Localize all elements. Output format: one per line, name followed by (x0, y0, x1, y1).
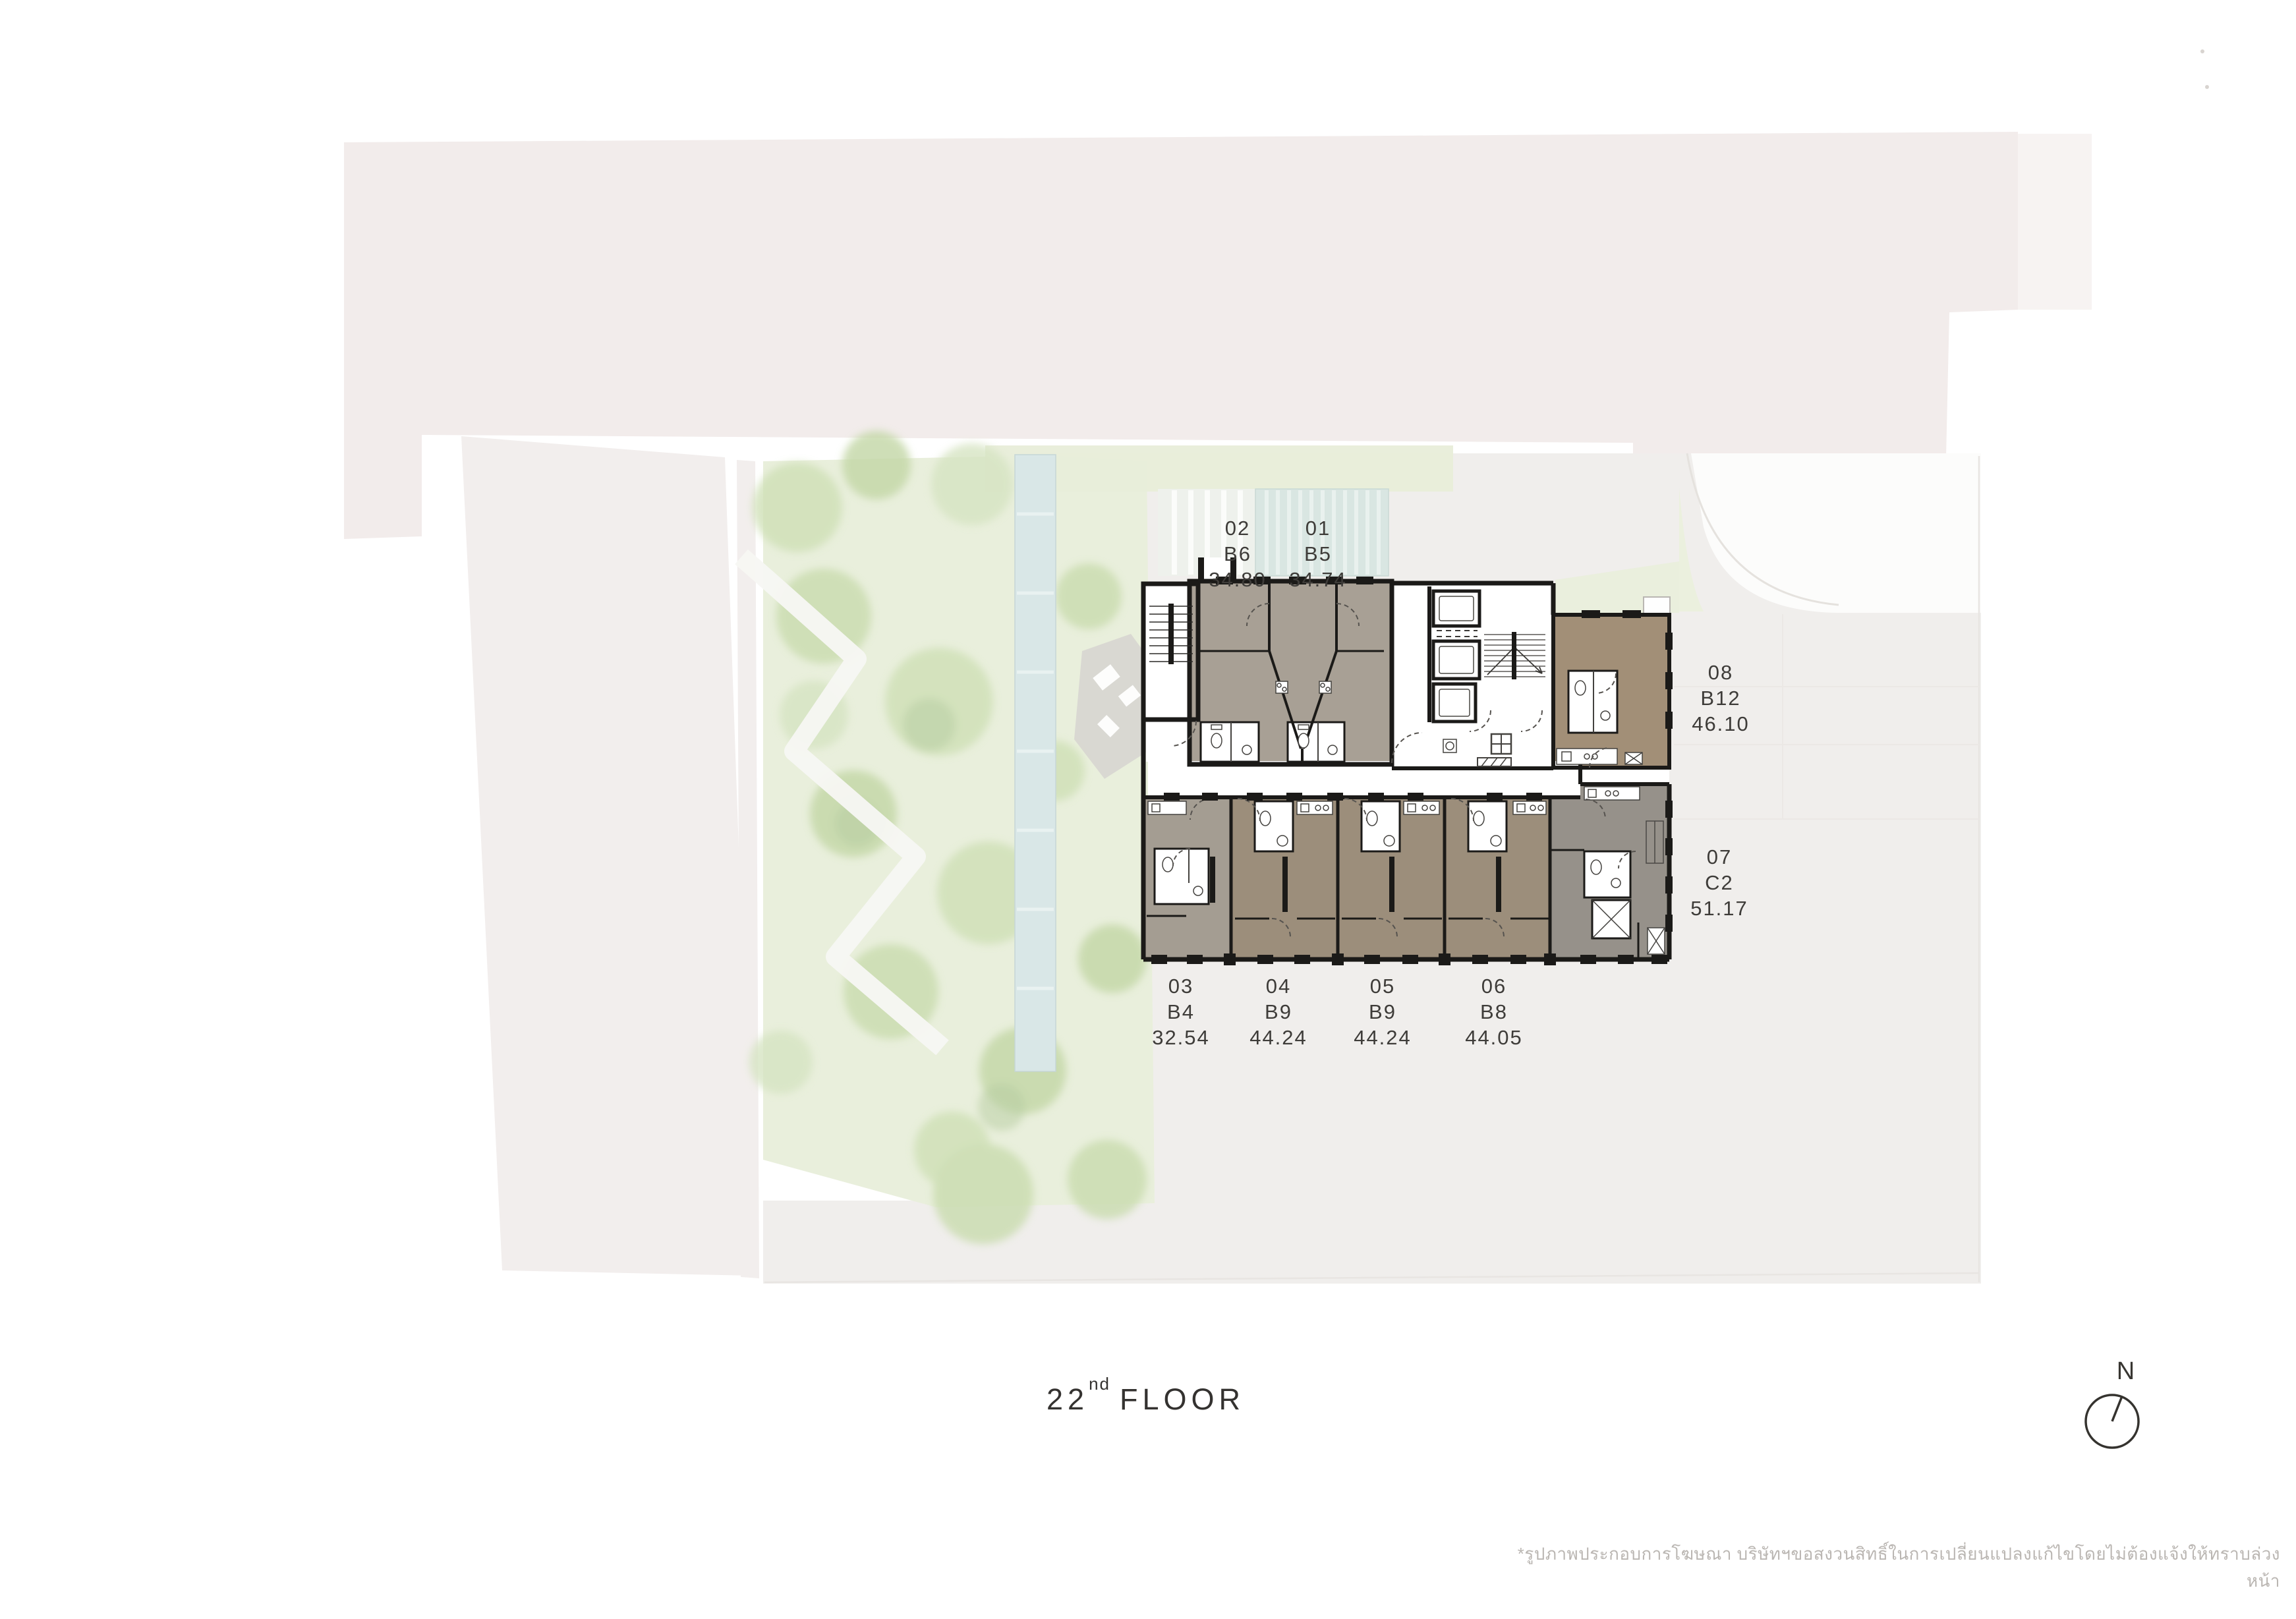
unit-label-07: 07 C2 51.17 (1647, 844, 1792, 921)
unit-number: 01 (1246, 515, 1391, 541)
disclaimer-text: *รูปภาพประกอบการโฆษณา บริษัทฯขอสงวนสิทธิ… (1516, 1541, 2280, 1595)
site-band-left (461, 436, 754, 1276)
unit-area: 34.74 (1246, 567, 1391, 592)
floor-word: FLOOR (1120, 1382, 1245, 1416)
floor-ordinal: nd (1089, 1374, 1110, 1394)
unit-type: B8 (1421, 999, 1566, 1025)
floor-number: 22 (1047, 1382, 1089, 1416)
unit-type: B12 (1648, 685, 1793, 711)
unit-area: 51.17 (1647, 895, 1792, 921)
floor-plan-page: 02 B6 34.80 01 B5 34.74 08 B12 46.10 07 … (0, 0, 2296, 1619)
unit-area: 46.10 (1648, 711, 1793, 737)
north-compass-icon (2086, 1395, 2138, 1448)
unit-area: 44.05 (1421, 1025, 1566, 1050)
unit-number: 08 (1648, 660, 1793, 685)
core-fill (1392, 583, 1553, 768)
site-plan-svg (0, 0, 2296, 1619)
unit-label-08: 08 B12 46.10 (1648, 660, 1793, 737)
unit-label-06: 06 B8 44.05 (1421, 973, 1566, 1050)
unit-number: 07 (1647, 844, 1792, 870)
building-floor-plan (1143, 557, 1673, 965)
unit-type: C2 (1647, 870, 1792, 895)
unit-label-01: 01 B5 34.74 (1246, 515, 1391, 592)
unit-number: 06 (1421, 973, 1566, 999)
floor-title: 22ndFLOOR (1047, 1382, 1245, 1417)
site-band-right-sliver (2018, 134, 2092, 310)
north-label: N (2106, 1357, 2146, 1386)
unit-type: B5 (1246, 541, 1391, 567)
